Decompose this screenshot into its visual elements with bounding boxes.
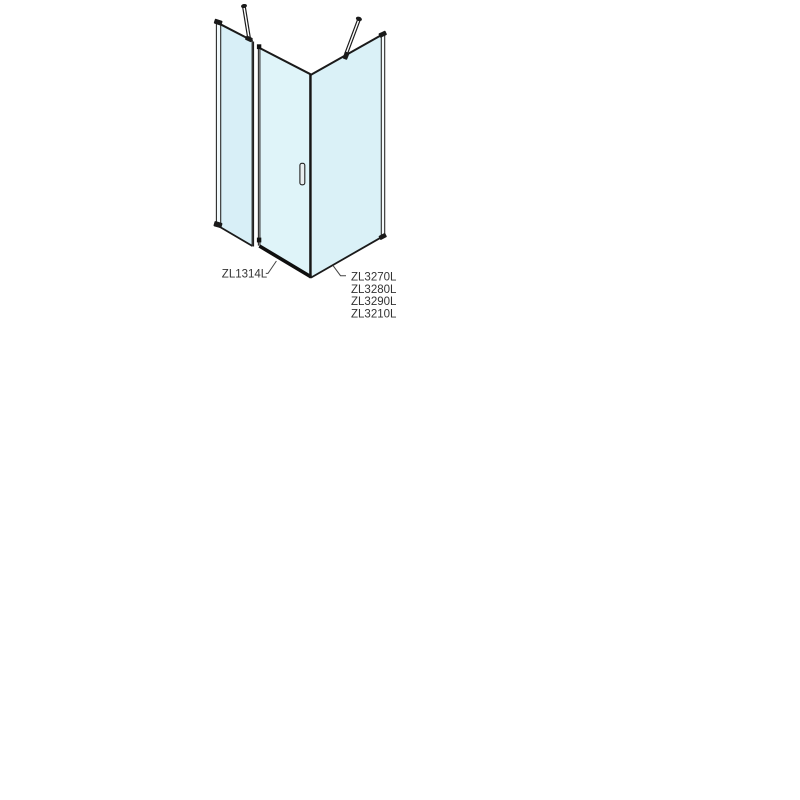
svg-text:ZL3270L: ZL3270L [351,272,397,284]
svg-text:ZL3280L: ZL3280L [351,284,397,296]
svg-text:ZL3290L: ZL3290L [351,296,397,308]
svg-text:ZL3210L: ZL3210L [351,309,397,321]
svg-text:ZL1314L: ZL1314L [222,268,268,280]
